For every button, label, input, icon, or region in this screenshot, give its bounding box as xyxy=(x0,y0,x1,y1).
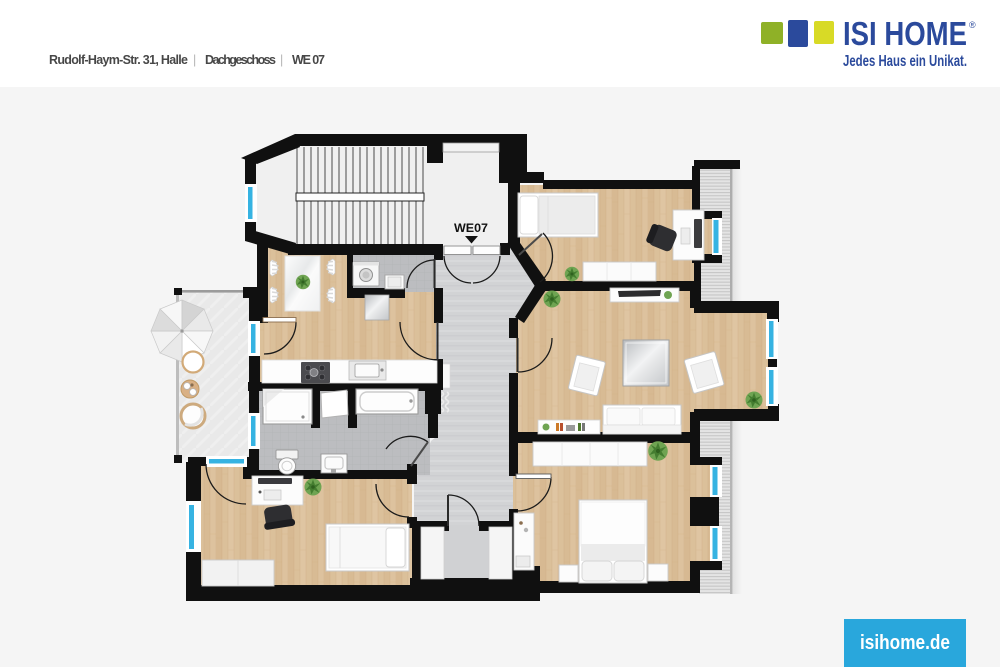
svg-text:Jedes Haus ein Unikat.: Jedes Haus ein Unikat. xyxy=(843,53,967,70)
svg-text:|: | xyxy=(280,53,283,67)
svg-text:WE 07: WE 07 xyxy=(292,53,325,67)
svg-text:ISI HOME: ISI HOME xyxy=(843,15,967,52)
svg-text:®: ® xyxy=(969,20,976,30)
svg-text:Dachgeschoss: Dachgeschoss xyxy=(205,53,276,67)
svg-text:isihome.de: isihome.de xyxy=(860,632,950,654)
svg-text:WE07: WE07 xyxy=(454,221,488,235)
svg-text:|: | xyxy=(193,53,196,67)
svg-text:Rudolf-Haym-Str. 31, Halle: Rudolf-Haym-Str. 31, Halle xyxy=(49,53,188,67)
